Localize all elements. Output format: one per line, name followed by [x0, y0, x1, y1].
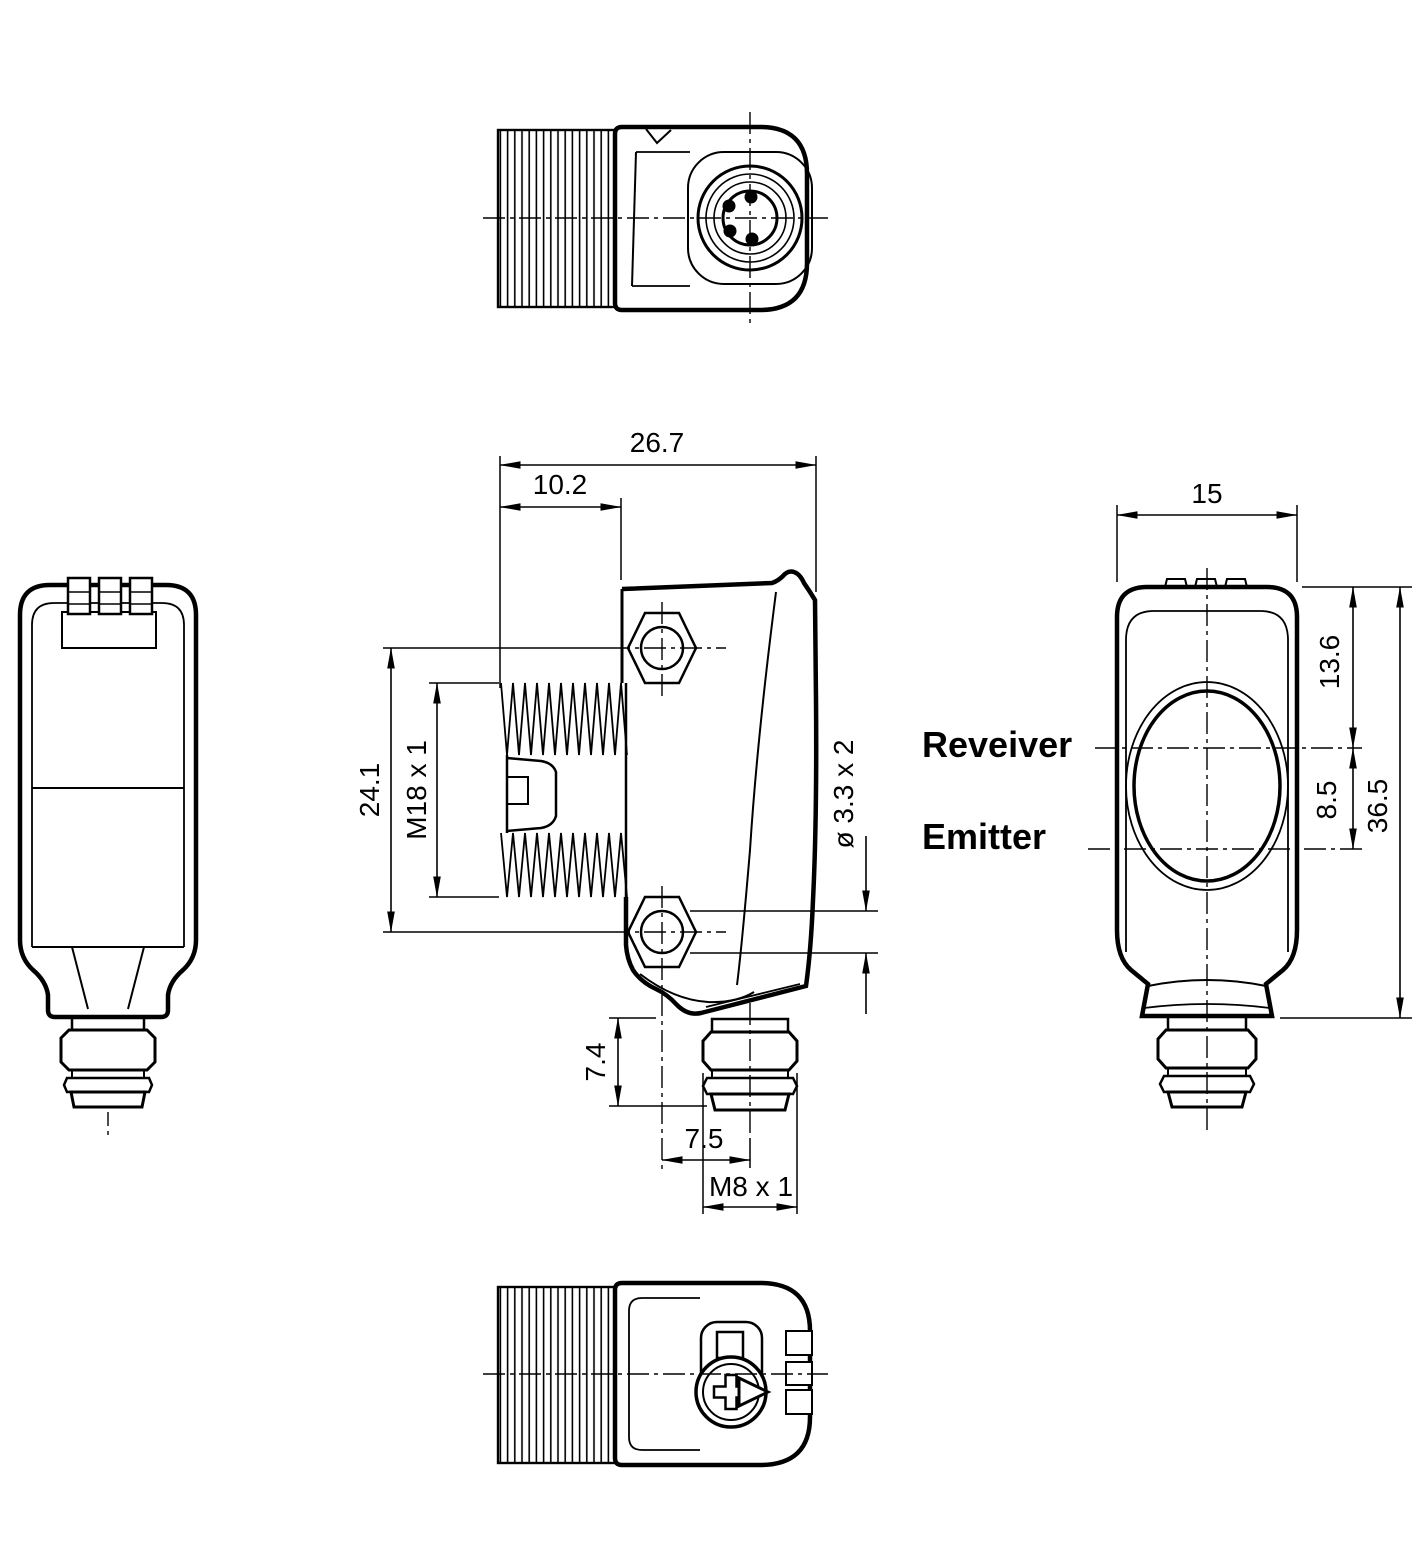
connector-pin [724, 225, 737, 238]
dimension-receiver-axis: 13.6 [1302, 587, 1412, 748]
foot-inner-line [706, 984, 800, 1007]
dimension-emitter-axis: 8.5 [1311, 748, 1353, 849]
sensor-dimension-drawing: 26.7 10.2 24.1 M18 x 1 ø 3.3 x 2 7.4 7.5 [0, 0, 1417, 1559]
dim-connector-thread: M8 x 1 [709, 1171, 793, 1202]
dim-overall-width: 26.7 [630, 427, 685, 458]
side-slot [786, 1390, 812, 1414]
inner-outline [32, 603, 184, 947]
dimension-thread-spec: M18 x 1 [401, 683, 499, 897]
molding-line [737, 592, 776, 985]
view-left [20, 578, 196, 1140]
dimension-hole-spacing: 24.1 [354, 648, 608, 932]
view-bottom [483, 1283, 828, 1465]
emitter-label: Emitter [922, 816, 1046, 857]
dim-mounting-holes: ø 3.3 x 2 [828, 740, 859, 849]
centerlines-front [608, 602, 750, 1170]
dimension-side-width: 15 [1117, 478, 1297, 582]
thread-stud-lower [501, 833, 627, 897]
optical-face [507, 755, 556, 833]
dimension-thread-length: 10.2 [500, 469, 621, 580]
m8-connector-rear [61, 1017, 155, 1140]
view-top [483, 112, 828, 324]
dim-side-width: 15 [1191, 478, 1222, 509]
inner-edge [632, 152, 636, 286]
dim-thread-length: 10.2 [533, 469, 588, 500]
side-slot [786, 1331, 812, 1355]
dim-thread-spec: M18 x 1 [401, 740, 432, 840]
taper-lines [72, 947, 144, 1009]
drawing-canvas: 26.7 10.2 24.1 M18 x 1 ø 3.3 x 2 7.4 7.5 [0, 0, 1417, 1559]
dim-side-height: 36.5 [1362, 779, 1393, 834]
dimension-side-height: 36.5 [1280, 587, 1412, 1018]
inner-bevel-lines [632, 152, 690, 286]
thread-cylinder-bottom-view [498, 1287, 615, 1463]
dim-connector-height: 7.4 [580, 1043, 611, 1082]
dim-emitter-axis: 8.5 [1311, 781, 1342, 820]
receiver-label: Reveiver [922, 724, 1072, 765]
connector-pin [746, 233, 759, 246]
dimension-mounting-holes: ø 3.3 x 2 [690, 740, 878, 1014]
dim-hole-spacing: 24.1 [354, 763, 385, 818]
led-window [717, 1332, 743, 1358]
view-front [501, 572, 816, 1171]
terminal-block [62, 612, 156, 648]
dimension-connector-offset: 7.5 [662, 1123, 750, 1168]
thread-stud-upper [501, 683, 627, 755]
housing-outline-rear [20, 585, 196, 1017]
dimension-connector-height: 7.4 [580, 1018, 707, 1106]
dim-receiver-axis: 13.6 [1314, 635, 1345, 690]
housing-tab-top [646, 129, 671, 143]
terminal-tabs [68, 578, 152, 614]
dim-connector-offset: 7.5 [685, 1123, 724, 1154]
connector-pin [723, 200, 736, 213]
connector-pin [745, 191, 758, 204]
